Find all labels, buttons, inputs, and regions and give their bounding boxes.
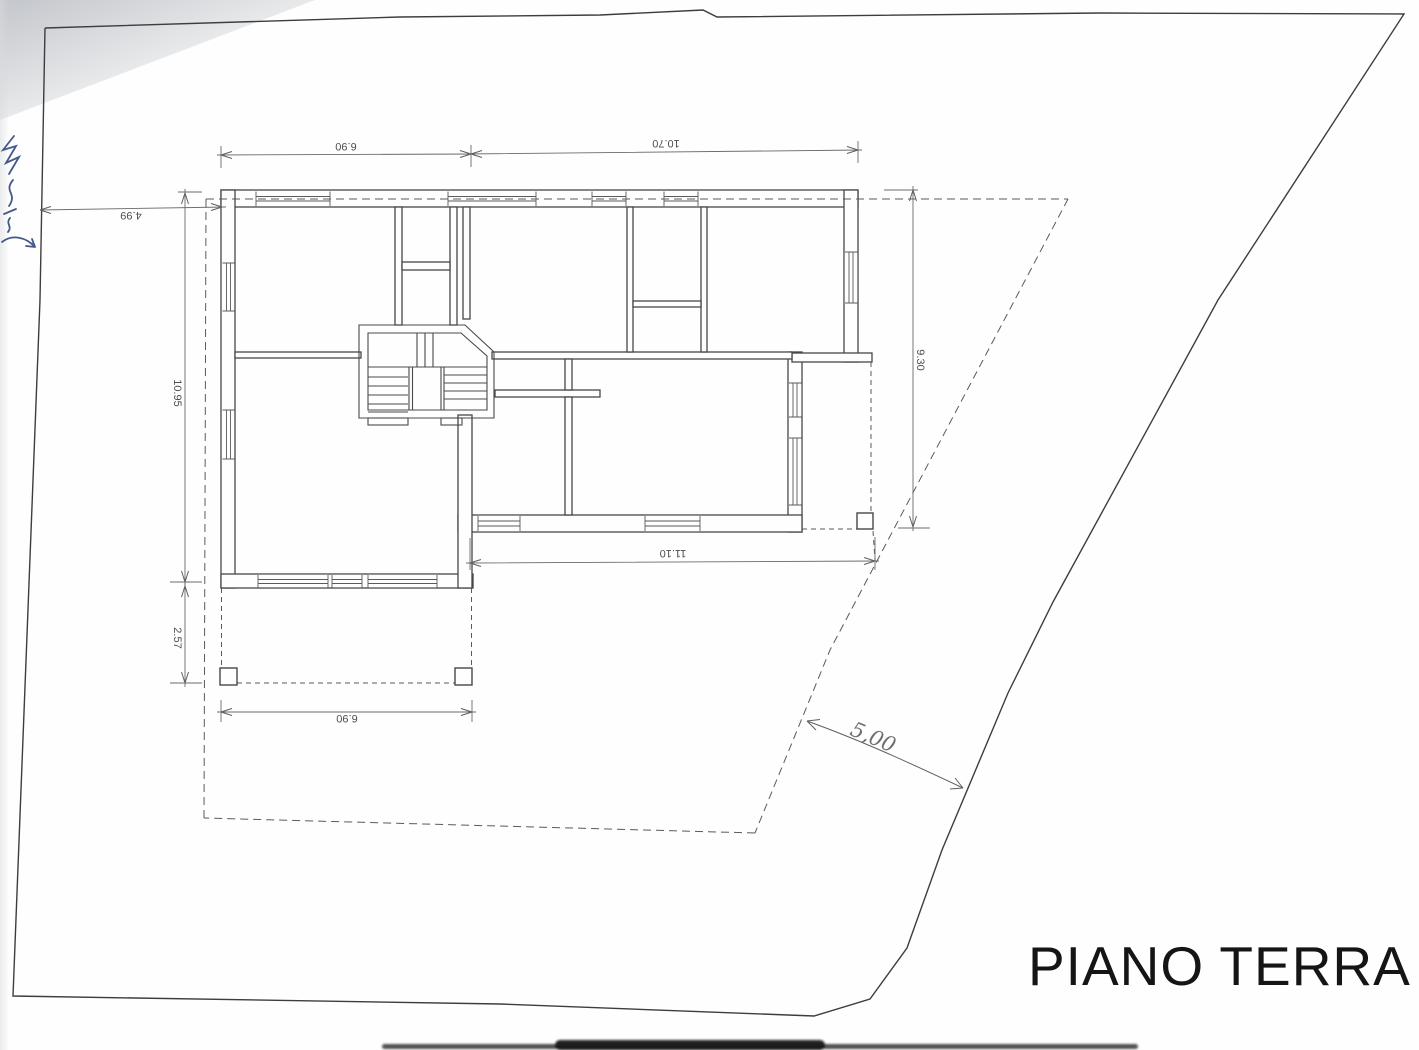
window — [256, 191, 330, 206]
dim-label-top-right-width: 10.70 — [652, 137, 680, 149]
dimension-setback-handwritten: 5,00 — [807, 717, 963, 789]
dim-label-top-left-width: 6.90 — [335, 140, 356, 152]
floor-plan-drawing: 6.90 10.70 4.99 10.95 2.57 9.30 — [0, 0, 1419, 1050]
terrace-pillar — [857, 513, 873, 529]
staircase — [359, 325, 494, 425]
stair-right-flight-treads — [444, 375, 487, 399]
window — [332, 575, 362, 588]
dimension-porch-depth: 2.57 — [170, 582, 202, 687]
window — [368, 575, 437, 588]
window — [645, 516, 700, 531]
dim-label-porch-depth: 2.57 — [171, 627, 183, 648]
dim-label-left-height: 10.95 — [171, 379, 183, 407]
wall-col-divider — [402, 262, 450, 270]
dimension-top-right-width: 10.70 — [467, 137, 862, 163]
dim-label-bottom-width: 11.10 — [660, 547, 687, 559]
dimensions: 6.90 10.70 4.99 10.95 2.57 9.30 — [40, 137, 963, 789]
terrace — [802, 362, 875, 560]
wall-roomB-right — [627, 207, 633, 352]
dim-label-setback-handwritten: 5,00 — [847, 717, 899, 757]
dim-label-boundary-gap: 4.99 — [120, 209, 141, 221]
wall-leftblock-divider — [235, 352, 361, 358]
porch-pillar-left — [220, 668, 237, 685]
wall-midroom-right — [701, 207, 707, 352]
porch — [220, 588, 472, 685]
wall-band-bottom — [492, 352, 792, 359]
wall-corridor-jamb — [565, 359, 572, 390]
wall-corridor-bottom — [495, 390, 600, 397]
stair-left-flight-treads — [368, 377, 408, 412]
dim-label-porch-width: 6.90 — [336, 712, 357, 724]
dim-label-right-height: 9.30 — [914, 349, 926, 370]
exterior-walls — [221, 190, 872, 588]
window — [222, 263, 234, 311]
scanned-floor-plan-page: 6.90 10.70 4.99 10.95 2.57 9.30 — [0, 0, 1419, 1050]
wall-roomA-right — [395, 207, 402, 325]
setback-left — [204, 199, 206, 818]
setback-bottom — [204, 818, 755, 833]
porch-pillar-right — [455, 668, 472, 685]
window — [845, 252, 858, 303]
window — [222, 410, 234, 459]
building-floor-plan — [221, 190, 872, 588]
wall-roomB-left — [463, 207, 470, 319]
stair-well-walls — [409, 367, 444, 410]
dimension-porch-width: 6.90 — [217, 700, 476, 724]
scan-dark-band — [382, 1040, 1138, 1050]
window — [789, 383, 802, 417]
stair-upper-treads — [368, 333, 487, 367]
window — [478, 516, 520, 531]
interior-walls — [235, 207, 792, 515]
window — [789, 438, 802, 505]
wall-left — [221, 190, 235, 588]
scan-left-edge-shadow — [0, 0, 9, 1050]
wall-terrace-top — [792, 353, 872, 362]
scan-corner-shadow — [0, 0, 315, 120]
dimension-top-left-width: 6.90 — [217, 140, 475, 168]
window — [258, 575, 328, 588]
wall-col-right — [450, 207, 457, 325]
plan-title: PIANO TERRA — [1028, 935, 1411, 997]
wall-midroom-divider — [633, 301, 701, 307]
wall-roomD-right — [565, 397, 572, 515]
dimension-bottom-width: 11.10 — [466, 537, 879, 570]
stair-lower-extension-left — [368, 418, 408, 425]
dimension-right-height: 9.30 — [884, 186, 930, 531]
dimension-left-height: 10.95 — [170, 189, 202, 586]
dimension-boundary-gap: 4.99 — [40, 204, 226, 222]
windows-bottom-left — [258, 575, 437, 588]
